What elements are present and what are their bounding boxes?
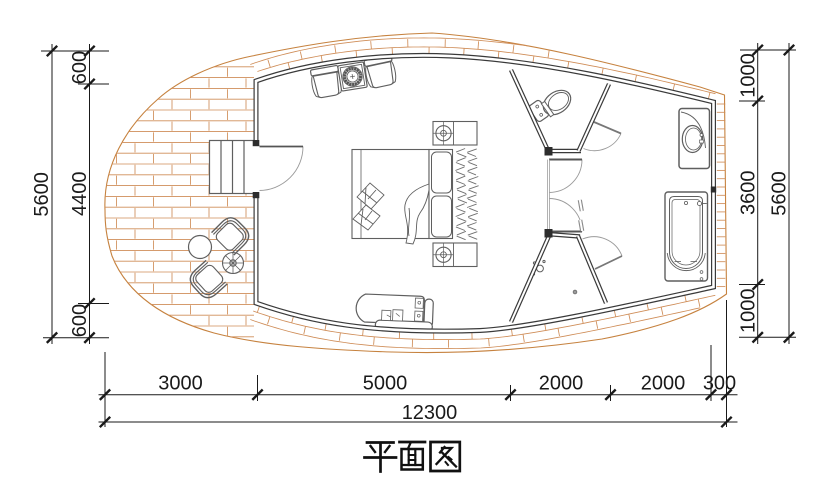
svg-text:600: 600 [69, 51, 91, 84]
svg-text:300: 300 [703, 373, 736, 395]
svg-text:2000: 2000 [539, 373, 584, 395]
svg-text:5600: 5600 [31, 172, 53, 217]
svg-text:3600: 3600 [738, 170, 760, 215]
svg-text:5600: 5600 [769, 171, 791, 216]
svg-text:12300: 12300 [402, 402, 458, 424]
svg-text:600: 600 [69, 304, 91, 337]
svg-text:1000: 1000 [738, 289, 760, 334]
svg-text:3000: 3000 [158, 373, 203, 395]
svg-text:5000: 5000 [363, 373, 408, 395]
svg-text:1000: 1000 [738, 53, 760, 98]
svg-text:2000: 2000 [641, 373, 686, 395]
svg-text:4400: 4400 [69, 172, 91, 217]
